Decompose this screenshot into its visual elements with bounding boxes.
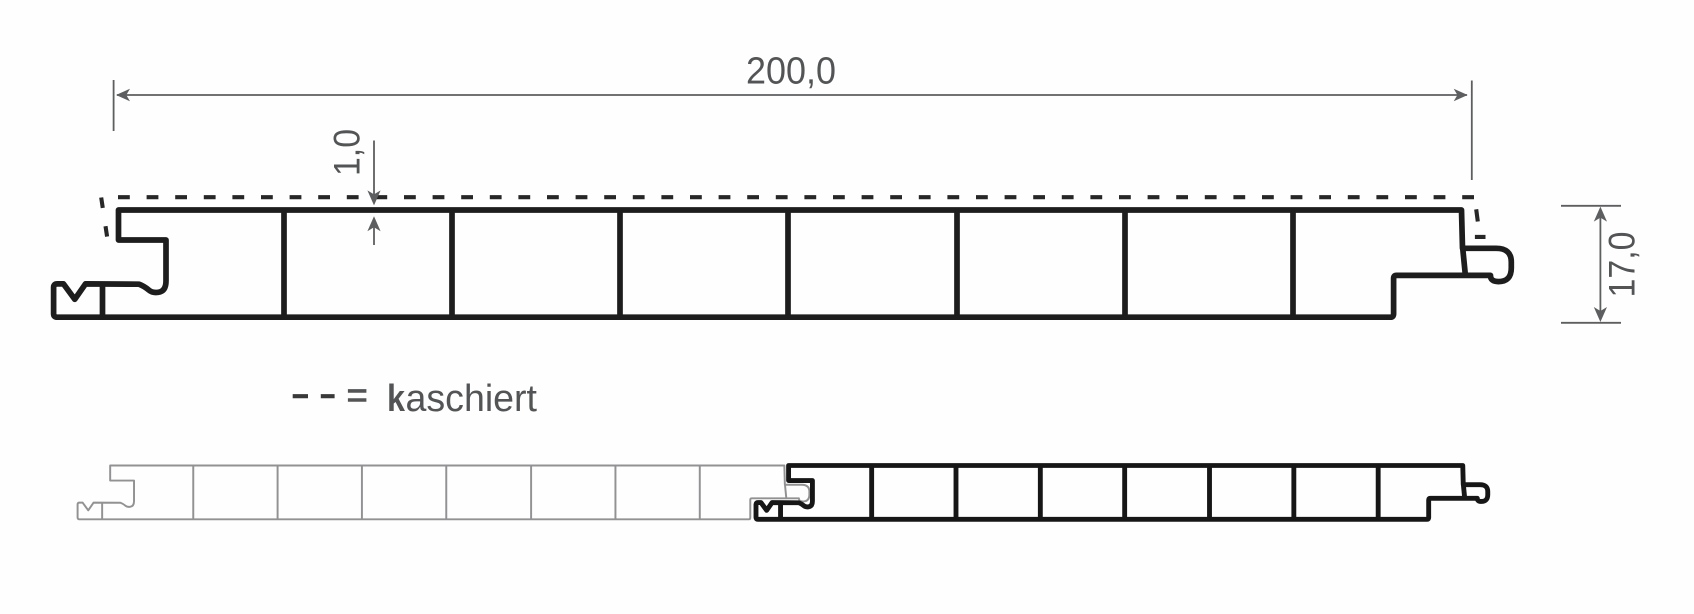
svg-text:17,0: 17,0 — [1602, 232, 1643, 298]
svg-text:aschiert: aschiert — [406, 378, 538, 420]
svg-text:k: k — [387, 378, 406, 420]
svg-text:200,0: 200,0 — [746, 51, 836, 93]
svg-text:1,0: 1,0 — [327, 129, 368, 176]
